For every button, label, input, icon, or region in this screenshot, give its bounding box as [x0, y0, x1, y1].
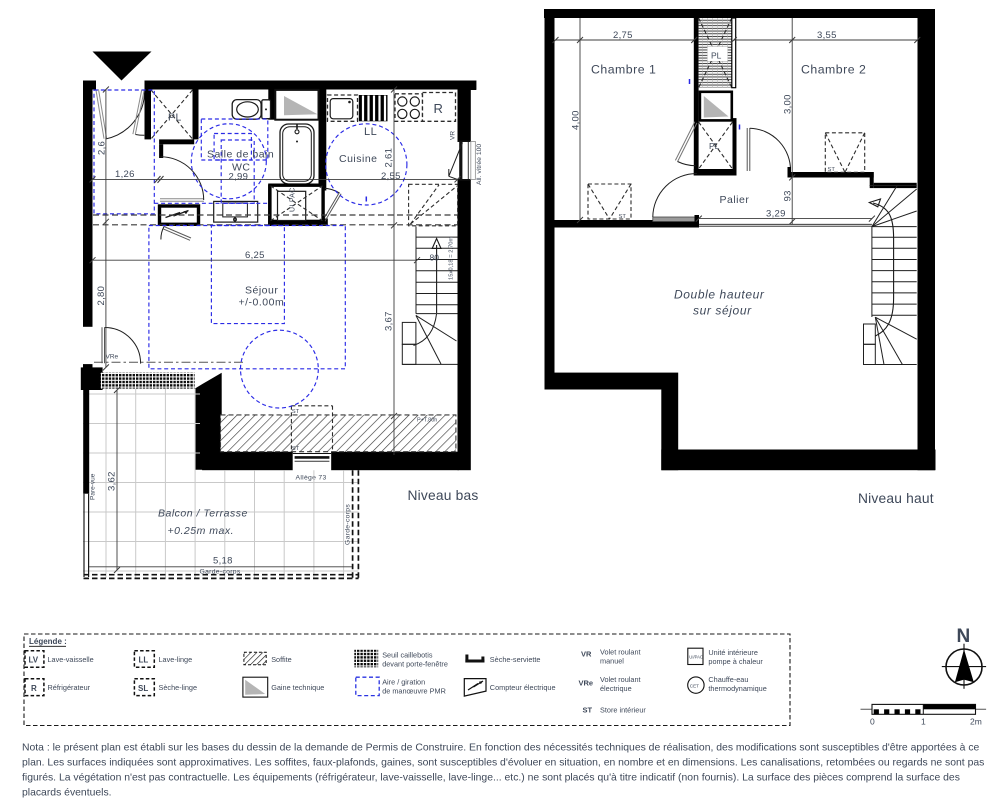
svg-text:plan. Les surfaces indiquées s: plan. Les surfaces indiquées sont approx… [22, 758, 984, 769]
svg-text:Lave-linge: Lave-linge [159, 655, 193, 664]
svg-text:Nota : le présent plan est éta: Nota : le présent plan est établi sur le… [22, 743, 980, 754]
svg-text:Gaine technique: Gaine technique [271, 683, 324, 692]
svg-text:LL: LL [364, 126, 377, 138]
svg-text:Garde-corps: Garde-corps [200, 569, 241, 576]
svg-text:PL: PL [709, 141, 720, 151]
svg-text:N: N [957, 626, 971, 647]
svg-text:1: 1 [921, 717, 926, 727]
svg-text:WC: WC [232, 162, 251, 174]
svg-text:PL: PL [168, 112, 182, 124]
svg-text:Chauffe-eau: Chauffe-eau [708, 675, 748, 684]
svg-text:6,25: 6,25 [245, 250, 265, 261]
svg-text:Cuisine: Cuisine [339, 153, 378, 165]
svg-text:Unité intérieure: Unité intérieure [708, 648, 757, 657]
svg-text:UI/PAC: UI/PAC [689, 655, 703, 660]
svg-text:Aire / giration: Aire / giration [382, 678, 425, 687]
svg-text:93: 93 [783, 190, 794, 201]
svg-text:2,61: 2,61 [384, 148, 395, 168]
svg-text:Sèche-serviette: Sèche-serviette [490, 655, 541, 664]
svg-text:Garde-corps: Garde-corps [345, 504, 352, 545]
svg-text:Double hauteur: Double hauteur [674, 288, 765, 302]
svg-text:VRe: VRe [579, 679, 594, 688]
svg-text:1,26: 1,26 [115, 169, 135, 180]
svg-text:VR: VR [450, 131, 457, 140]
svg-text:All. vitrée 100: All. vitrée 100 [476, 144, 483, 185]
svg-text:2,75: 2,75 [613, 30, 633, 41]
svg-text:Store intérieur: Store intérieur [600, 706, 646, 715]
svg-text:pompe à chaleur: pompe à chaleur [708, 657, 763, 666]
svg-text:ST: ST [292, 409, 300, 415]
svg-text:ST: ST [583, 706, 593, 715]
svg-text:3,00: 3,00 [783, 94, 794, 114]
svg-text:R: R [434, 101, 444, 116]
svg-text:sur séjour: sur séjour [693, 304, 752, 318]
svg-text:SL: SL [138, 684, 148, 693]
svg-text:électrique: électrique [600, 684, 632, 693]
svg-text:3,67: 3,67 [384, 311, 395, 331]
svg-text:Seuil caillebotis: Seuil caillebotis [382, 651, 433, 660]
svg-text:PL: PL [711, 51, 722, 61]
svg-text:thermodynamique: thermodynamique [708, 684, 766, 693]
svg-text:Chambre 1: Chambre 1 [591, 63, 656, 77]
svg-text:Compteur électrique: Compteur électrique [490, 683, 556, 692]
svg-text:2m: 2m [970, 717, 982, 727]
svg-text:2,6: 2,6 [97, 141, 108, 155]
svg-text:P+T.80h: P+T.80h [417, 418, 437, 424]
svg-text:ST: ST [292, 446, 300, 452]
svg-text:15x0,18 = 2,70m: 15x0,18 = 2,70m [449, 236, 455, 280]
svg-text:ST: ST [828, 167, 836, 173]
svg-text:VR: VR [581, 650, 592, 659]
svg-text:Légende :: Légende : [29, 637, 67, 646]
svg-text:VRe: VRe [106, 354, 119, 361]
svg-text:ST: ST [619, 214, 627, 220]
svg-text:2,80: 2,80 [96, 286, 107, 306]
svg-text:Séjour: Séjour [245, 285, 278, 297]
svg-text:80: 80 [430, 253, 440, 263]
svg-text:Volet roulant: Volet roulant [600, 648, 641, 657]
svg-text:UI PAC: UI PAC [290, 187, 297, 212]
svg-text:Volet roulant: Volet roulant [600, 675, 641, 684]
svg-text:LL: LL [139, 656, 149, 665]
svg-text:2,55: 2,55 [381, 171, 401, 182]
svg-text:Chambre 2: Chambre 2 [801, 63, 866, 77]
svg-text:manuel: manuel [600, 657, 624, 666]
svg-text:0: 0 [870, 717, 875, 727]
svg-text:+0.25m max.: +0.25m max. [168, 525, 235, 537]
svg-text:Niveau bas: Niveau bas [408, 488, 479, 503]
svg-text:Réfrigérateur: Réfrigérateur [48, 683, 91, 692]
svg-text:figurés. La végétation n'est p: figurés. La végétation n'est pas contrac… [22, 773, 960, 784]
svg-text:Sèche-linge: Sèche-linge [159, 683, 198, 692]
svg-text:LV: LV [29, 656, 39, 665]
svg-text:3,29: 3,29 [766, 209, 786, 220]
svg-text:3,62: 3,62 [107, 471, 118, 491]
svg-text:Soffite: Soffite [271, 655, 292, 664]
svg-text:Pare-vue: Pare-vue [90, 473, 97, 500]
svg-text:R: R [31, 684, 37, 693]
svg-text:Lave-vaisselle: Lave-vaisselle [48, 655, 94, 664]
svg-text:Allège 73: Allège 73 [296, 475, 327, 482]
svg-text:Palier: Palier [720, 194, 750, 206]
svg-text:5,18: 5,18 [213, 556, 233, 567]
svg-text:Niveau haut: Niveau haut [858, 491, 934, 506]
svg-text:Salle de bain: Salle de bain [207, 149, 274, 161]
svg-text:devant porte-fenêtre: devant porte-fenêtre [382, 660, 448, 669]
svg-text:Balcon / Terrasse: Balcon / Terrasse [158, 508, 248, 520]
svg-text:4,00: 4,00 [571, 110, 582, 130]
svg-text:de manœuvre PMR: de manœuvre PMR [382, 687, 446, 696]
svg-text:placards éventuels.: placards éventuels. [22, 788, 112, 799]
svg-text:CET: CET [690, 683, 699, 688]
svg-text:+/-0.00m: +/-0.00m [239, 297, 285, 309]
svg-text:3,55: 3,55 [817, 30, 837, 41]
